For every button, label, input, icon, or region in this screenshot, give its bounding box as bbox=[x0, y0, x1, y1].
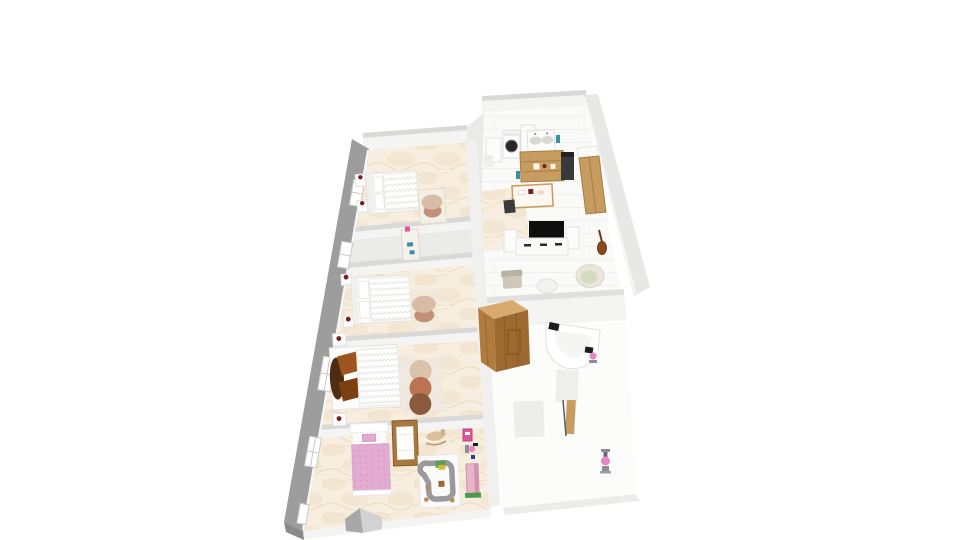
pouf-bedroom2[interactable] bbox=[409, 289, 439, 328]
armchair[interactable] bbox=[501, 270, 523, 289]
desk-chair[interactable] bbox=[503, 199, 515, 213]
play-road-rug[interactable] bbox=[418, 454, 461, 508]
tv-screen bbox=[529, 221, 564, 238]
blue-bottle[interactable] bbox=[516, 171, 520, 179]
wood-shelving[interactable] bbox=[520, 150, 564, 181]
papasan-chair[interactable] bbox=[576, 265, 604, 288]
crib[interactable] bbox=[392, 420, 419, 466]
wood-door-panel bbox=[565, 400, 576, 434]
circle-rug-master[interactable] bbox=[399, 358, 444, 416]
bench-pouf-bedroom1[interactable] bbox=[418, 188, 446, 224]
hallway-cabinet[interactable] bbox=[401, 226, 420, 261]
floorplan-canvas bbox=[0, 0, 960, 540]
corner-bathtub[interactable] bbox=[546, 322, 600, 369]
stove-top bbox=[561, 152, 574, 157]
double-sink-vanity[interactable] bbox=[527, 130, 555, 152]
round-table[interactable] bbox=[537, 279, 557, 293]
media-console bbox=[516, 238, 568, 255]
floorplan-render bbox=[0, 0, 960, 540]
kids-pink-bed[interactable] bbox=[350, 423, 391, 496]
kitchen-desk[interactable] bbox=[512, 184, 553, 208]
doll-tower[interactable] bbox=[464, 464, 481, 499]
blue-bottle[interactable] bbox=[556, 135, 560, 143]
child-figure bbox=[590, 353, 597, 360]
sauna-cabin[interactable] bbox=[478, 300, 530, 372]
washer-door-icon bbox=[506, 140, 518, 152]
side-cabinet bbox=[504, 230, 517, 252]
